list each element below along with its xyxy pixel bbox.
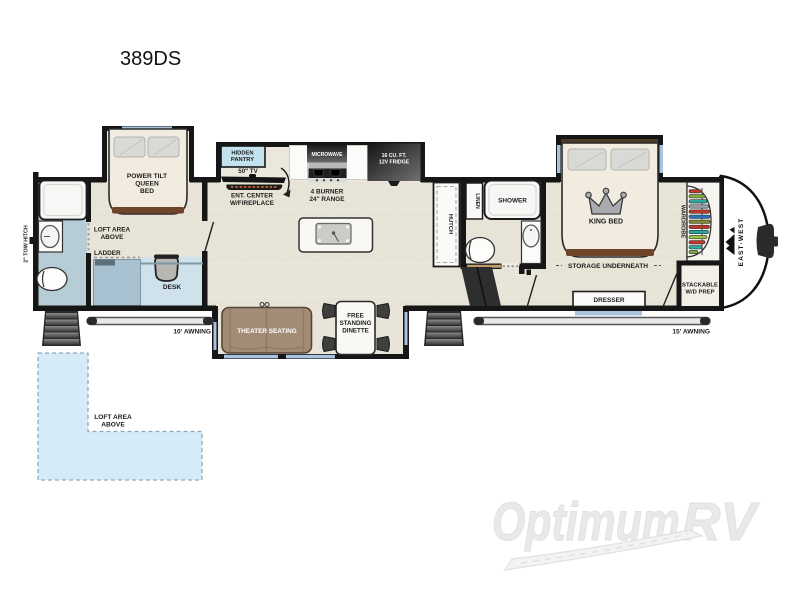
svg-text:LADDER: LADDER: [94, 250, 121, 257]
svg-text:PANTRY: PANTRY: [231, 157, 254, 163]
svg-text:KING BED: KING BED: [589, 219, 623, 226]
svg-text:MICROWAVE: MICROWAVE: [311, 152, 343, 158]
svg-text:2" TOW HITCH: 2" TOW HITCH: [24, 225, 30, 263]
svg-text:BED: BED: [140, 188, 154, 195]
svg-text:THEATER SEATING: THEATER SEATING: [237, 328, 296, 335]
svg-text:LOFT AREA: LOFT AREA: [94, 227, 131, 234]
svg-text:DESK: DESK: [163, 284, 182, 291]
svg-text:WARDROBE: WARDROBE: [680, 205, 686, 239]
svg-text:DINETTE: DINETTE: [342, 328, 368, 335]
svg-text:POWER TILT: POWER TILT: [127, 173, 167, 180]
svg-text:LINEN: LINEN: [474, 193, 480, 209]
svg-text:STACKABLE: STACKABLE: [682, 283, 718, 289]
svg-text:24" RANGE: 24" RANGE: [310, 196, 346, 203]
svg-text:15' AWNING: 15' AWNING: [672, 329, 710, 336]
svg-text:W/FIREPLACE: W/FIREPLACE: [230, 200, 275, 207]
svg-text:4 BURNER: 4 BURNER: [311, 189, 344, 196]
svg-text:10' AWNING: 10' AWNING: [173, 329, 211, 336]
svg-text:50" TV: 50" TV: [238, 168, 258, 175]
svg-text:HUTCH: HUTCH: [447, 214, 453, 234]
svg-text:STORAGE UNDERNEATH: STORAGE UNDERNEATH: [568, 263, 648, 270]
svg-text:QUEEN: QUEEN: [135, 181, 159, 188]
svg-text:W/D PREP: W/D PREP: [685, 290, 714, 296]
svg-text:EAST⋅WEST: EAST⋅WEST: [738, 218, 745, 267]
svg-text:LOFT AREA: LOFT AREA: [94, 414, 132, 421]
svg-text:DRESSER: DRESSER: [594, 297, 625, 304]
svg-text:ABOVE: ABOVE: [101, 422, 125, 429]
svg-text:ENT. CENTER: ENT. CENTER: [231, 193, 273, 200]
svg-text:RV: RV: [682, 492, 760, 552]
svg-text:16 CU. FT.: 16 CU. FT.: [382, 153, 407, 159]
svg-text:HIDDEN: HIDDEN: [231, 151, 253, 157]
svg-text:ABOVE: ABOVE: [101, 234, 124, 241]
svg-text:SHOWER: SHOWER: [498, 198, 527, 205]
svg-text:STANDING: STANDING: [340, 320, 372, 327]
svg-text:FREE: FREE: [347, 313, 364, 320]
svg-text:389DS: 389DS: [120, 48, 181, 70]
svg-text:12V FRIDGE: 12V FRIDGE: [379, 160, 410, 166]
